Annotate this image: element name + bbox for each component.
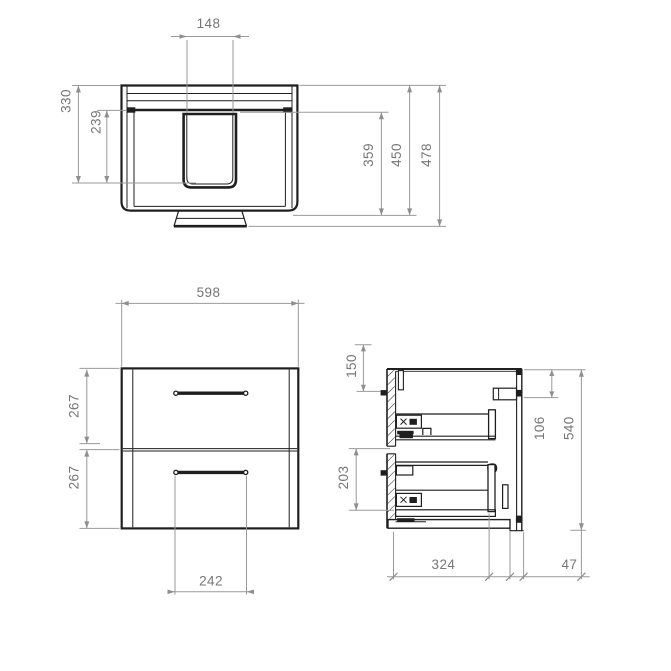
dimension-body-height: 540 [562, 370, 586, 530]
rail-corner-bracket-left [127, 107, 136, 112]
dimension-upper-drawer-front: 267 [67, 368, 120, 443]
dimension-top-to-fixing: 150 [344, 345, 381, 392]
plan-view: 148 330 239 359 450 [59, 16, 447, 226]
plan-outline [122, 86, 298, 211]
dim-label-242: 242 [199, 574, 223, 589]
upper-drawer-section [396, 410, 496, 440]
basin-cutout-inner [187, 115, 233, 185]
lower-drawer-section [396, 462, 508, 522]
dimension-body-width: 598 [116, 285, 305, 367]
dim-label-148: 148 [197, 16, 221, 31]
top-rail-section [398, 371, 403, 390]
dim-label-267-upper: 267 [67, 394, 82, 418]
dimension-lower-drawer-inner: 203 [336, 449, 394, 511]
dim-label-203: 203 [336, 466, 351, 490]
dim-label-450: 450 [389, 143, 404, 167]
dim-label-598: 598 [197, 285, 221, 300]
dimension-overall-depth: 478 [249, 85, 447, 226]
dim-label-106: 106 [532, 416, 547, 440]
dim-label-324: 324 [432, 557, 456, 572]
front-fixing-screw-upper [381, 390, 387, 395]
dim-label-359: 359 [361, 143, 376, 167]
dimension-bottom-row: 324 47 [387, 513, 590, 580]
dim-label-267-lower: 267 [67, 466, 82, 490]
drawer-front-adjuster [503, 485, 508, 509]
plan-front-tab [174, 211, 247, 226]
dimension-basin-cutout-width: 148 [171, 16, 249, 113]
technical-drawing-canvas: 148 330 239 359 450 [0, 0, 671, 671]
upper-runner-box [396, 415, 421, 428]
side-section-view: 150 203 106 540 324 47 [336, 345, 590, 581]
plan-inner-edges [127, 87, 292, 209]
basin-cutout-outer [184, 114, 236, 187]
dim-label-478: 478 [419, 143, 434, 167]
front-view: 598 267 267 242 [67, 285, 305, 595]
dim-label-540: 540 [562, 416, 577, 440]
dimension-basin-front-depth: 239 [89, 110, 127, 183]
dim-label-150: 150 [344, 354, 359, 378]
lower-runner-box [396, 493, 421, 506]
dim-label-47: 47 [561, 557, 577, 572]
dim-label-330: 330 [59, 89, 74, 113]
upper-drawer-handle [174, 391, 248, 395]
dimension-lower-drawer-front: 267 [67, 450, 120, 529]
drawer-bottom-section [396, 510, 496, 517]
front-fixing-screw-lower [381, 470, 387, 475]
vanity-dimension-drawing: 148 330 239 359 450 [0, 0, 671, 671]
lower-drawer-handle [174, 470, 248, 474]
dim-label-239: 239 [89, 110, 104, 134]
